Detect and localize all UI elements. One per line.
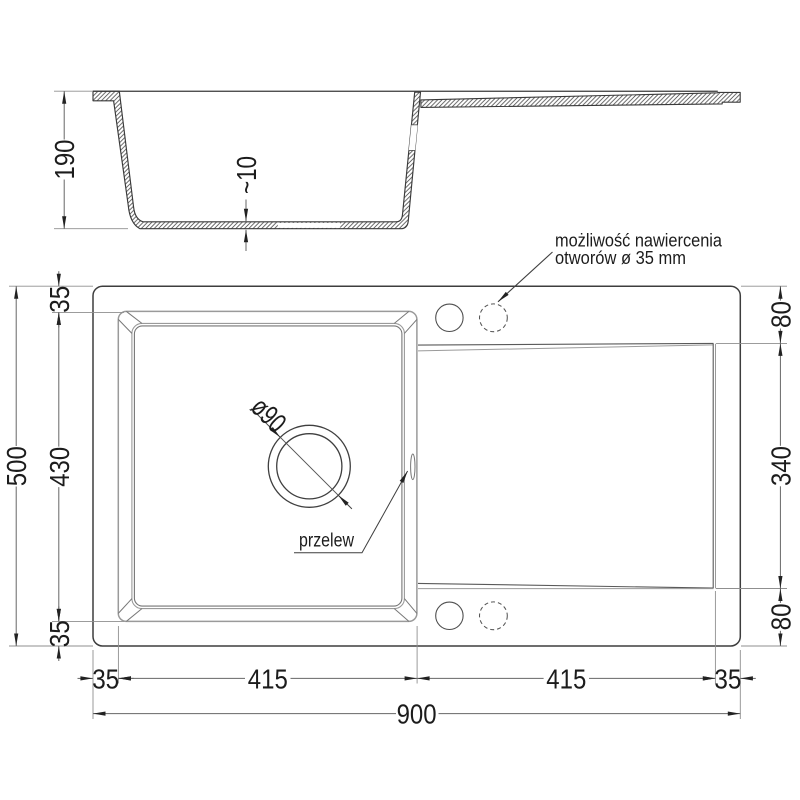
svg-text:35: 35	[92, 663, 119, 694]
svg-text:190: 190	[49, 140, 80, 180]
svg-text:340: 340	[765, 446, 796, 486]
svg-text:35: 35	[44, 620, 75, 647]
svg-text:80: 80	[765, 603, 796, 630]
svg-text:otworów ø 35 mm: otworów ø 35 mm	[555, 248, 686, 268]
svg-text:900: 900	[397, 699, 437, 730]
svg-text:35: 35	[714, 663, 741, 694]
svg-text:430: 430	[44, 447, 75, 487]
svg-text:~10: ~10	[231, 156, 262, 194]
svg-text:przelew: przelew	[299, 531, 354, 552]
svg-text:80: 80	[765, 301, 796, 328]
svg-text:415: 415	[248, 663, 288, 694]
svg-text:500: 500	[1, 446, 32, 486]
svg-text:35: 35	[44, 286, 75, 313]
svg-text:415: 415	[546, 663, 586, 694]
